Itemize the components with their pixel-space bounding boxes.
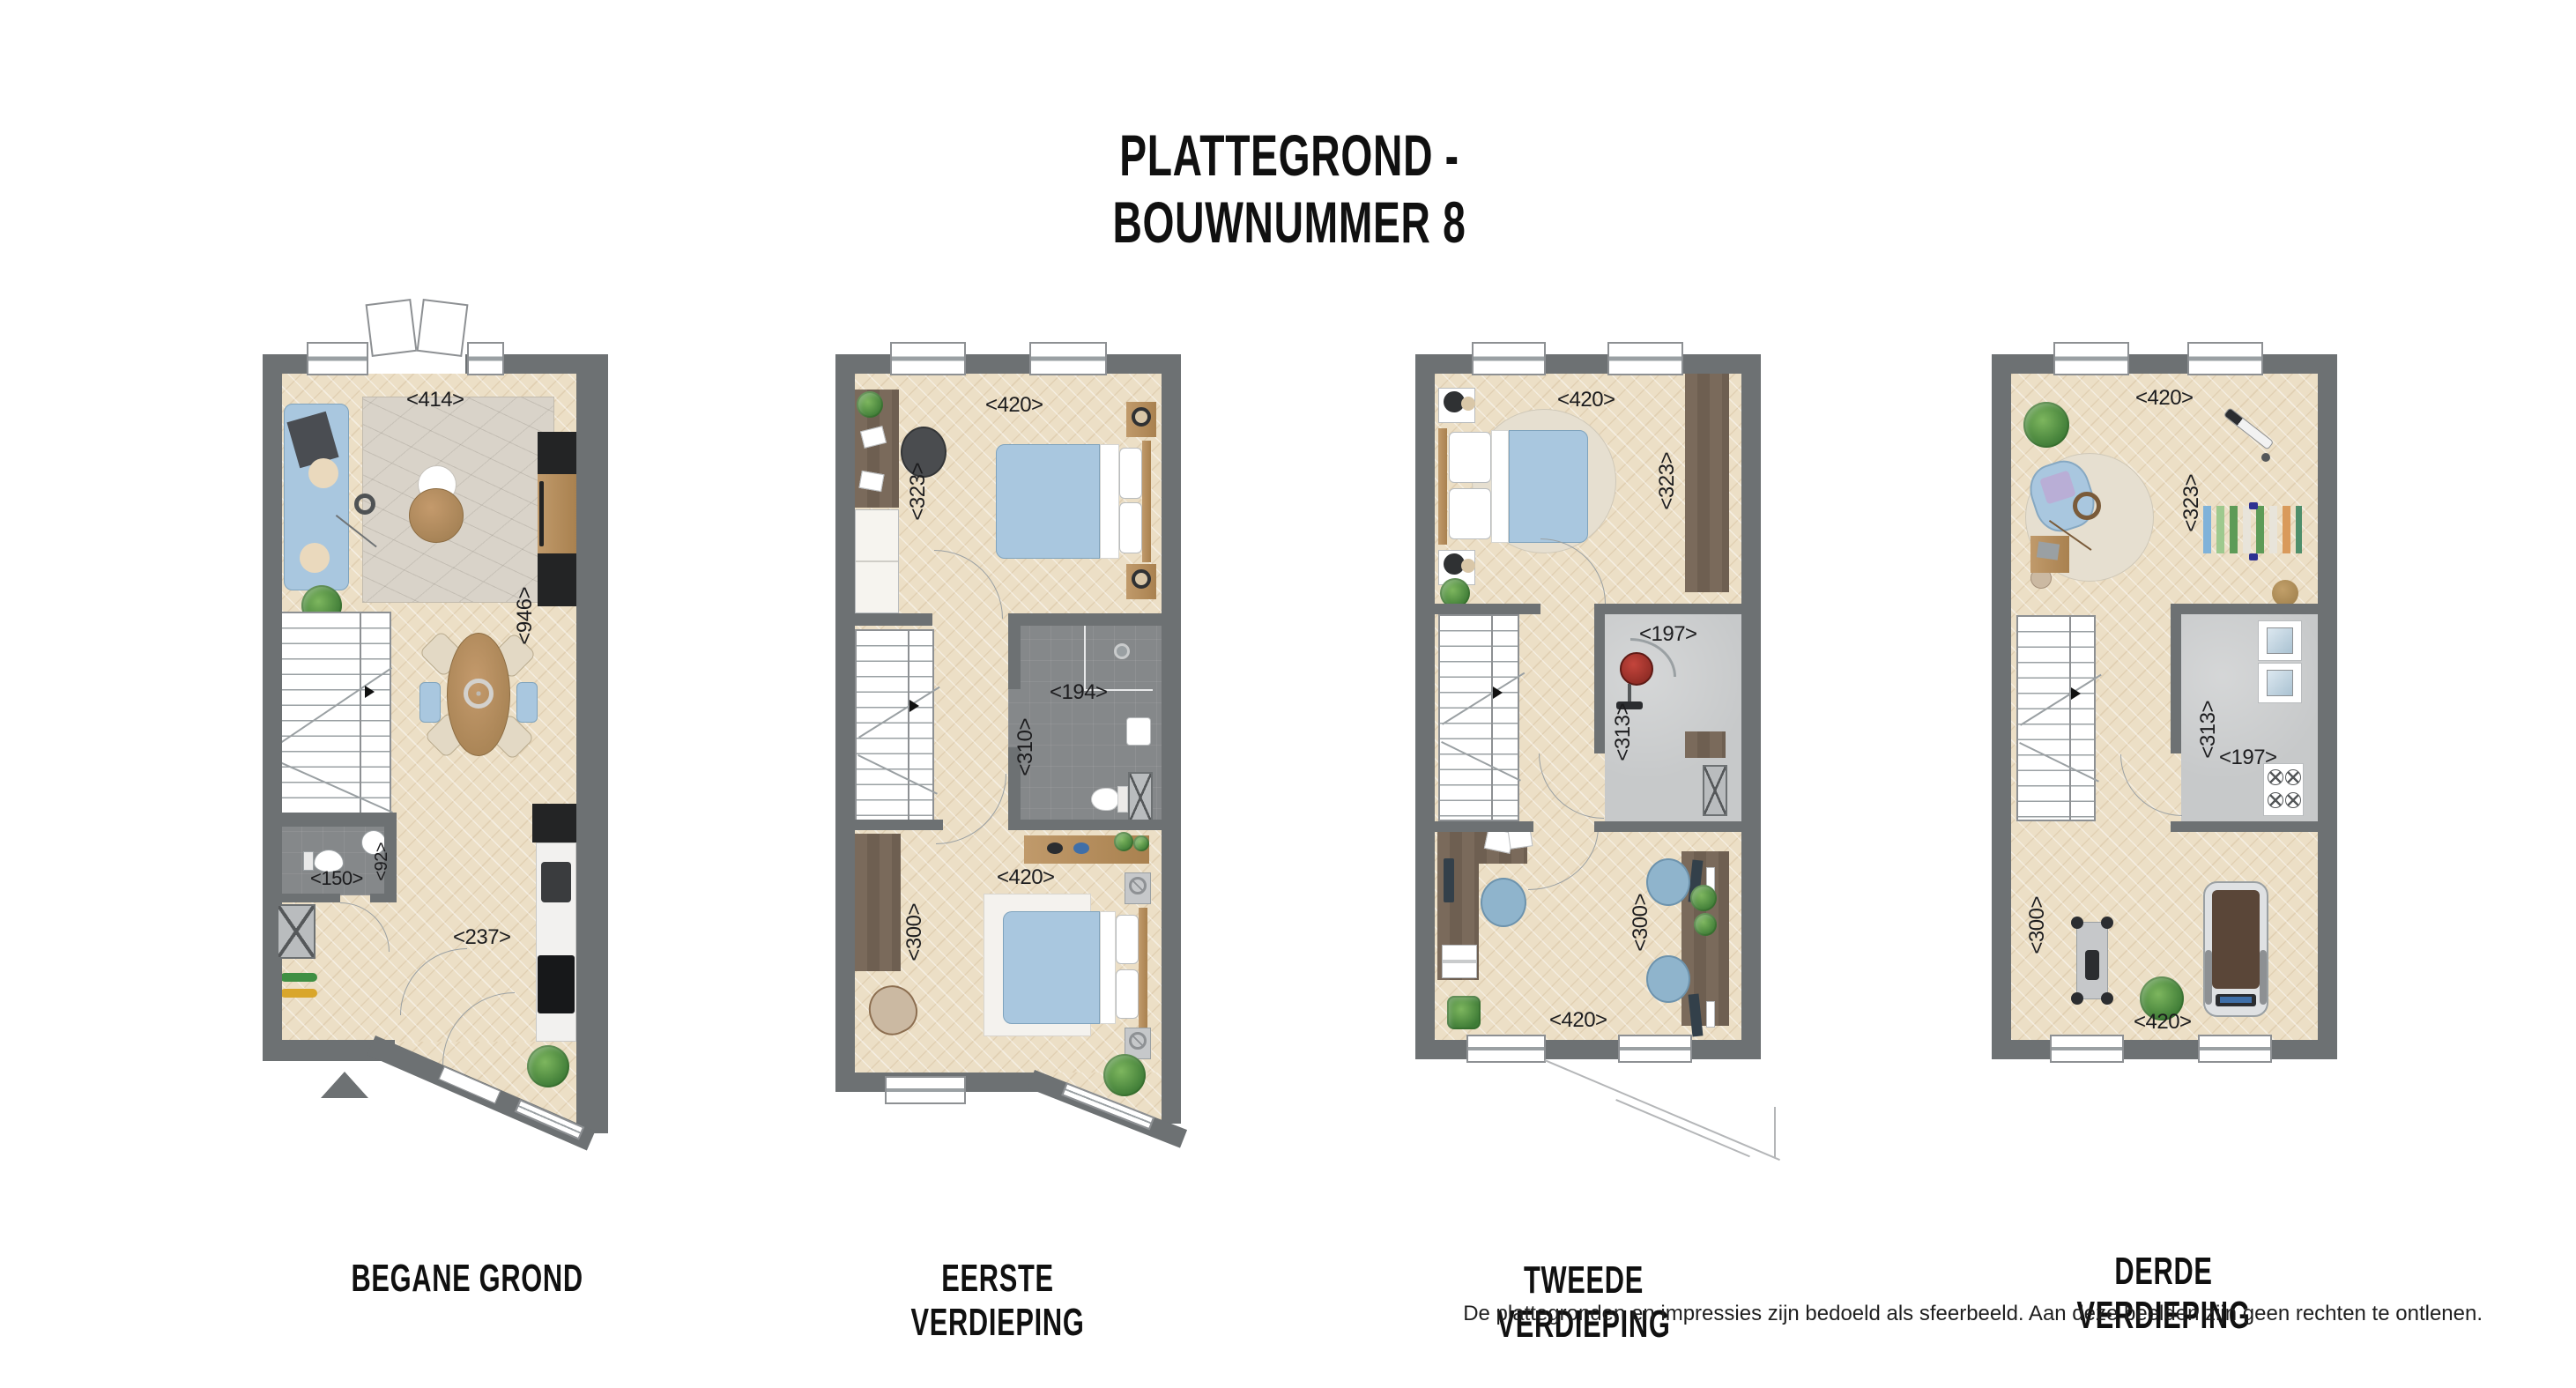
window [2053,342,2129,375]
sofa-cushion [308,458,338,488]
window [1607,342,1683,375]
plant [1694,913,1717,936]
wall-bed3-bottom [1435,604,1540,614]
dimension-label: <300> [2025,896,2050,954]
plant [1690,885,1717,911]
disclaimer-text: De plattegronden en impressies zijn bedo… [1463,1302,2483,1326]
window [890,342,966,375]
floorplan-derde-verdieping: <420> <323> <313> <197> <300> <420> [1992,333,2337,1082]
window [1472,342,1546,375]
dimension-label: <92> [372,842,392,881]
wall-bath-top [1008,613,1162,626]
wardrobe [855,834,901,971]
dimension-label: <420> [985,393,1043,418]
window [2198,1035,2272,1063]
wall-bed2-top [855,820,943,830]
dimension-label: <197> [2219,746,2277,770]
printer [1442,945,1477,978]
shaft [1703,765,1727,816]
dimension-label: <313> [2196,701,2221,759]
scooter-green [280,973,317,982]
wall-toilet-top [278,813,397,827]
bench-pad [2071,992,2083,1005]
bench-pad [2101,992,2113,1005]
bed-sheet [1100,444,1119,559]
monitor [1444,858,1454,902]
wall-bath-left [1008,626,1021,689]
bowl [1073,842,1089,854]
toilet [1091,788,1119,811]
headboard [1142,441,1151,562]
lamp-shade [1461,559,1475,573]
wall-laundry-top [2171,604,2318,614]
wall-bottom [1992,1040,2337,1059]
dimension-label: <414> [406,388,464,412]
dimension-label: <310> [1013,718,1038,776]
vacuum-stick [1628,684,1631,701]
dimension-label: <946> [513,587,538,645]
floor-label-begane-grond: BEGANE GROND [291,1257,643,1301]
pillow [1116,915,1139,964]
keyboard [1706,1001,1715,1028]
dryer-door [2267,670,2293,696]
bed-duvet [1509,430,1588,543]
bed-duvet [1003,911,1100,1024]
roof-outline [1774,1107,1776,1158]
wall-bed1-bottom [855,613,932,626]
sofa-cushion [300,543,330,573]
bed-duvet [996,444,1100,559]
stairs-direction-arrow [1493,687,1503,699]
telescope-base [2261,453,2270,462]
table-lamp [1132,407,1151,427]
coffee-table [409,488,464,543]
shower-head [1114,643,1130,659]
roof-outline [1544,1059,1780,1161]
wall-toilet-bottom [278,894,340,902]
wardrobe [1685,374,1729,592]
headboard [1438,428,1447,545]
window [1029,342,1107,375]
yoga-mats [2203,506,2302,553]
staircase [277,612,391,821]
lamp-shade [1461,397,1475,411]
north-arrow [321,1072,368,1098]
wall-right [2318,354,2337,1059]
wall-office-top [1435,821,1533,832]
office-chair [1481,878,1526,927]
plant [1114,832,1133,851]
tv-cabinet-bottom [538,553,576,606]
wall-laundry-left [2171,614,2181,753]
wall-left [835,354,855,1092]
pillow [1119,448,1142,499]
wall-top [1415,354,1761,374]
staircase [855,629,934,828]
floorplan-eerste-verdieping: <420> <323> <194> <310> <420> <300> [835,333,1181,1139]
meter-closet [277,904,316,959]
wall-laundry-bottom [2171,821,2318,832]
window [885,1076,966,1104]
treadmill-display-screen [2220,997,2252,1003]
dimension-label: <323> [906,463,931,521]
pouf [2272,580,2298,606]
staircase [2016,615,2096,821]
bowl [1047,842,1063,854]
office-chair [1646,955,1690,1003]
dimension-label: <420> [997,865,1055,890]
wall-top [1992,354,2337,374]
wall-left [1415,354,1435,1059]
fan-lamp [1129,877,1147,894]
wall-tech-left [1594,614,1605,753]
dimension-label: <420> [2135,386,2194,411]
wall-left [1992,354,2011,1059]
page-title: PLATTEGROND - BOUWNUMMER 8 [849,122,1730,256]
wall-right [1741,354,1761,1059]
floorplan-tweede-verdieping: <420> <323> <197> <313> <300> <420> [1415,333,1761,1166]
plant [857,391,883,418]
mat-strap [2249,553,2258,560]
pillow [1116,969,1139,1019]
floorplan-begane-grond: <414> <946> <150> <92> <237> [263,333,608,1144]
bench-pad [2071,917,2083,929]
stairs-direction-arrow [909,700,919,712]
kitchen-hob [538,955,575,1013]
dimension-label: <313> [1611,703,1636,761]
dimension-label: <300> [902,903,927,961]
stairs-direction-arrow [2071,687,2081,700]
wall-toilet-bottom [370,894,397,902]
window [2187,342,2263,375]
papers [858,471,884,492]
wall-right [576,354,608,1133]
toilet-tank [1117,786,1128,813]
stairs-direction-arrow [365,686,375,698]
floor-label-eerste-verdieping: EERSTE VERDIEPING [821,1257,1174,1345]
dimension-label: <420> [2134,1010,2192,1035]
pillow [1119,502,1142,553]
wall-tech-top [1594,604,1741,614]
plant [527,1045,569,1087]
pillow [1449,432,1491,483]
washbasin [1126,717,1151,746]
dining-chair-blue [419,682,441,723]
window [1466,1035,1546,1063]
tv-screen [539,481,544,546]
roof-outline [1615,1099,1750,1157]
dimension-label: <420> [1549,1008,1607,1033]
garden-doors-opening [368,354,465,374]
table-lamp [1132,569,1151,589]
fan-lamp [1129,1032,1147,1050]
dimension-label: <300> [1629,894,1653,952]
dimension-label: <323> [2179,474,2204,532]
dimension-label: <237> [453,925,511,950]
dining-chair-blue [516,682,538,723]
low-cabinet [855,509,899,613]
wheel-lamp [2073,492,2101,520]
headboard [1139,908,1147,1028]
dimension-label: <194> [1050,680,1108,705]
plant [1133,835,1149,851]
bench-pad [2101,917,2113,929]
wall-tech-bottom [1594,821,1741,832]
kitchen-sink [541,862,571,902]
kitchen-tall-cabinet [532,804,576,842]
wall-right [1162,354,1181,1124]
wall-bath-bottom [1008,820,1162,830]
floor-lamp [354,494,375,515]
bed-sheet [1491,430,1509,543]
window [307,342,368,375]
dimension-label: <150> [310,867,363,890]
plant [2023,402,2069,448]
dimension-label: <420> [1557,388,1615,412]
dimension-label: <197> [1639,622,1697,647]
treadmill-belt [2212,890,2260,989]
shelf [1685,731,1726,758]
treadmill-rail [2260,950,2267,1005]
window [1618,1035,1692,1063]
window [467,342,504,375]
bed-sheet [1100,911,1116,1024]
staircase [1438,614,1519,821]
mat-strap [2249,502,2258,509]
pillow [1449,488,1491,539]
scooter-yellow [280,989,317,998]
plant [1103,1054,1146,1096]
bench-seat [2085,950,2099,980]
dimension-label: <323> [1655,452,1680,510]
tv-cabinet-top [538,432,576,474]
shaft [1128,772,1153,823]
garden-door-leaf [366,299,418,357]
window [2050,1035,2124,1063]
wall-top [835,354,1181,374]
treadmill-rail [2205,950,2212,1005]
book [2037,541,2060,560]
garden-door-leaf [417,299,469,357]
plant-box [1447,996,1481,1029]
serving-tray [464,679,494,709]
washer-door [2267,627,2293,654]
heatpump-unit [2263,763,2304,816]
